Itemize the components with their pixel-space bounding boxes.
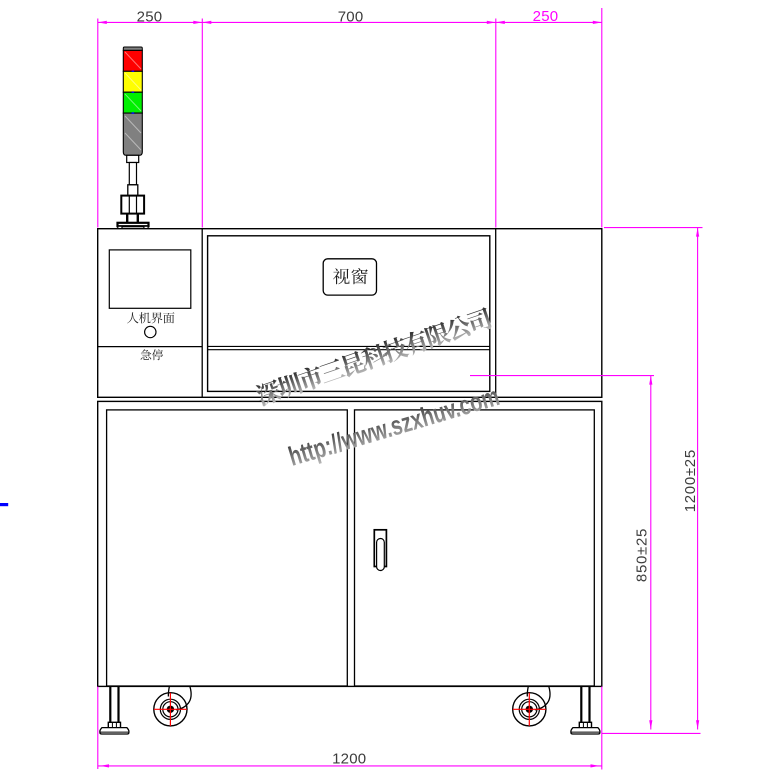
svg-text:1200: 1200 (332, 750, 366, 767)
svg-text:700: 700 (338, 8, 364, 25)
svg-text:250: 250 (137, 8, 163, 25)
svg-text:1200±25: 1200±25 (682, 449, 699, 512)
svg-text:250: 250 (533, 8, 559, 25)
svg-text:850±25: 850±25 (634, 528, 651, 582)
